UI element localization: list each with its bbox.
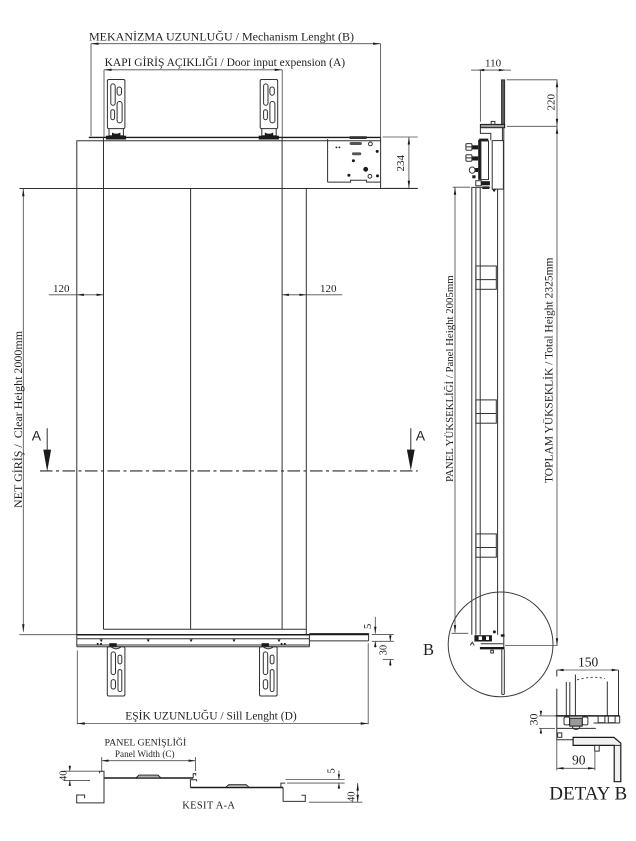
svg-text:A: A [32, 427, 42, 443]
svg-text:120: 120 [320, 283, 337, 295]
svg-text:KESIT A-A: KESIT A-A [182, 801, 235, 812]
svg-text:5: 5 [363, 624, 374, 629]
svg-text:40: 40 [347, 792, 358, 803]
svg-text:220: 220 [546, 94, 558, 111]
svg-text:PANEL GENİŞLİĞİ: PANEL GENİŞLİĞİ [105, 737, 187, 749]
svg-text:NET GİRİŞ / Clear Height 2000: NET GİRİŞ / Clear Height 2000mm [11, 330, 25, 508]
svg-text:B: B [423, 640, 434, 659]
svg-text:120: 120 [53, 283, 70, 295]
svg-text:30: 30 [379, 645, 390, 656]
svg-text:30: 30 [527, 714, 541, 726]
svg-text:234: 234 [395, 155, 407, 172]
svg-text:5: 5 [326, 768, 337, 773]
svg-text:MEKANİZMA UZUNLUĞU / Mechanism: MEKANİZMA UZUNLUĞU / Mechanism Lenght (B… [89, 30, 354, 44]
svg-text:110: 110 [485, 58, 502, 70]
svg-text:40: 40 [59, 771, 70, 782]
svg-text:90: 90 [572, 753, 586, 768]
svg-text:PANEL YÜKSEKLİĞİ / Panel Heigh: PANEL YÜKSEKLİĞİ / Panel Height 2005mm [444, 275, 456, 482]
svg-text:EŞİK UZUNLUĞU / Sill Lenght (D: EŞİK UZUNLUĞU / Sill Lenght (D) [125, 708, 297, 722]
svg-text:Panel Width (C): Panel Width (C) [115, 749, 175, 759]
svg-text:150: 150 [578, 655, 599, 670]
svg-text:A: A [416, 427, 426, 443]
svg-text:DETAY B: DETAY B [549, 784, 627, 805]
svg-text:TOPLAM YÜKSEKLİK / Total Heigh: TOPLAM YÜKSEKLİK / Total Height 2325mm [541, 257, 555, 483]
svg-text:KAPI GİRİŞ AÇIKLIĞI / Door inp: KAPI GİRİŞ AÇIKLIĞI / Door input expensi… [105, 55, 346, 69]
